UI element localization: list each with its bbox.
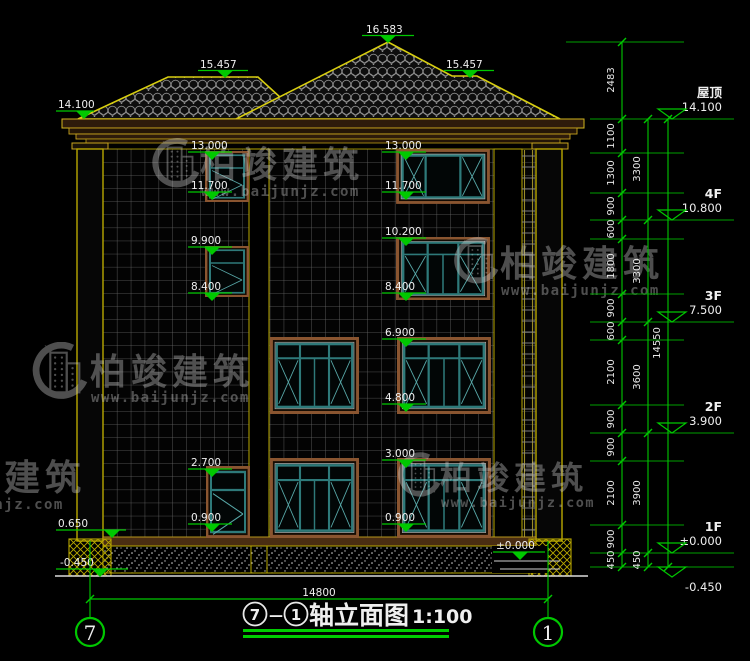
- title-text: 轴立面图: [309, 601, 409, 630]
- elevation-marker-roof-peak: 16.583: [362, 24, 414, 43]
- dim-label: 1100: [606, 123, 617, 148]
- elevation-value: 10.200: [385, 226, 422, 238]
- floor-name: 3F: [705, 288, 722, 303]
- floor-elevation: 14.100: [682, 100, 722, 114]
- title-scale: 1:100: [412, 606, 472, 628]
- floor-marker-roof: 屋顶 14.100: [658, 85, 722, 119]
- dim-label: 600: [606, 321, 617, 340]
- dim-label: 2100: [606, 359, 617, 384]
- title-axis-from: 7: [250, 606, 260, 624]
- floor-name: 屋顶: [697, 85, 723, 100]
- window-mid-1f: [271, 460, 357, 537]
- floor-name: 1F: [705, 519, 722, 534]
- axis-bubble-right: 1: [534, 618, 562, 646]
- dim-label: 900: [606, 196, 617, 215]
- dim-label: 450: [606, 550, 617, 569]
- elevation-marker-roof-ridge-left: 15.457: [198, 59, 248, 78]
- floor-elevation: -0.450: [685, 580, 722, 594]
- dim-label: 3300: [632, 258, 643, 283]
- elevation-value: 3.000: [385, 448, 415, 460]
- watermark-url: www.baijunjz.com: [91, 390, 250, 406]
- watermark-url: www.baijunjz.com: [501, 283, 660, 299]
- axis-number: 1: [542, 621, 555, 645]
- title-axis-to: 1: [291, 606, 301, 624]
- elevation-value: 2.700: [191, 457, 221, 469]
- elevation-value: 0.650: [58, 518, 88, 530]
- cad-elevation-svg: 柏竣建筑 www.baijunjz.com 柏竣建筑 www.baijunjz.…: [0, 0, 750, 661]
- wall-pier-left: [249, 149, 269, 541]
- dimension-chain-total: 14550: [652, 115, 672, 571]
- elevation-drawing-canvas: 柏竣建筑 www.baijunjz.com 柏竣建筑 www.baijunjz.…: [0, 0, 750, 661]
- plinth-base: [103, 546, 536, 573]
- dim-label: 900: [606, 409, 617, 428]
- watermark-url: www.baijunjz.com: [0, 497, 64, 513]
- eave-cornice: [62, 119, 584, 143]
- watermark-bottom-left-partial: 柏竣建筑 www.baijunjz.com: [0, 458, 86, 513]
- watermark-brand: 柏竣建筑: [0, 458, 86, 499]
- floor-band: [103, 537, 536, 546]
- drawing-title: 7 — 1 轴立面图 1:100: [243, 601, 472, 638]
- elevation-value: 15.457: [200, 59, 237, 71]
- floor-name: 4F: [705, 186, 722, 201]
- dim-label: 3600: [632, 364, 643, 389]
- watermark-brand: 柏竣建筑: [90, 352, 254, 393]
- dim-label: 900: [606, 298, 617, 317]
- elevation-value: 15.457: [446, 59, 483, 71]
- elevation-value: 4.800: [385, 392, 415, 404]
- floor-name: 2F: [705, 399, 722, 414]
- dim-label: 450: [632, 550, 643, 569]
- window-mid-2f: [271, 339, 357, 413]
- floor-elevation: 7.500: [689, 303, 722, 317]
- elevation-value: 8.400: [385, 281, 415, 293]
- title-separator: —: [269, 608, 283, 624]
- dim-label: 3900: [632, 480, 643, 505]
- elevation-value: 0.900: [191, 512, 221, 524]
- roof-main-hip: [236, 42, 560, 119]
- elevation-value: 13.000: [385, 140, 422, 152]
- elevation-value: 16.583: [366, 24, 403, 36]
- floor-elevation: 10.800: [682, 201, 722, 215]
- axis-number: 7: [84, 621, 97, 645]
- dim-label: 900: [606, 437, 617, 456]
- elevation-value: -0.450: [60, 557, 94, 569]
- elevation-value: 14.100: [58, 99, 95, 111]
- floor-elevation: 3.900: [689, 414, 722, 428]
- elevation-value: 11.700: [385, 180, 422, 192]
- overall-width-dim: 14800: [302, 587, 335, 599]
- dimension-chain-floors: 3300 3300 3600 3900 450: [632, 115, 652, 571]
- watermark-left: 柏竣建筑 www.baijunjz.com: [36, 345, 254, 406]
- elevation-value: 11.700: [191, 180, 228, 192]
- elevation-value: ±0.000: [496, 540, 535, 552]
- elevation-value: 6.900: [385, 327, 415, 339]
- elevation-value: 8.400: [191, 281, 221, 293]
- floor-marker-ground: -0.450: [658, 567, 722, 594]
- elevation-value: 9.900: [191, 235, 221, 247]
- dim-label: 1300: [606, 160, 617, 185]
- axis-bubble-left: 7: [76, 618, 104, 646]
- watermark-url: www.baijunjz.com: [441, 495, 595, 511]
- watermark-brand: 柏竣建筑: [440, 459, 588, 497]
- dim-label: 2483: [606, 67, 617, 92]
- dim-label: 600: [606, 219, 617, 238]
- dim-label: 14550: [652, 327, 663, 359]
- dim-label: 2100: [606, 480, 617, 505]
- elevation-value: 0.900: [385, 512, 415, 524]
- floor-elevation: ±0.000: [679, 534, 722, 548]
- elevation-value: 13.000: [191, 140, 228, 152]
- dim-label: 900: [606, 529, 617, 548]
- dim-label: 1800: [606, 253, 617, 278]
- dimension-chain-inner: 2483 1100 1300 900 600 1800 900 600 2100…: [606, 38, 626, 571]
- dim-label: 3300: [632, 156, 643, 181]
